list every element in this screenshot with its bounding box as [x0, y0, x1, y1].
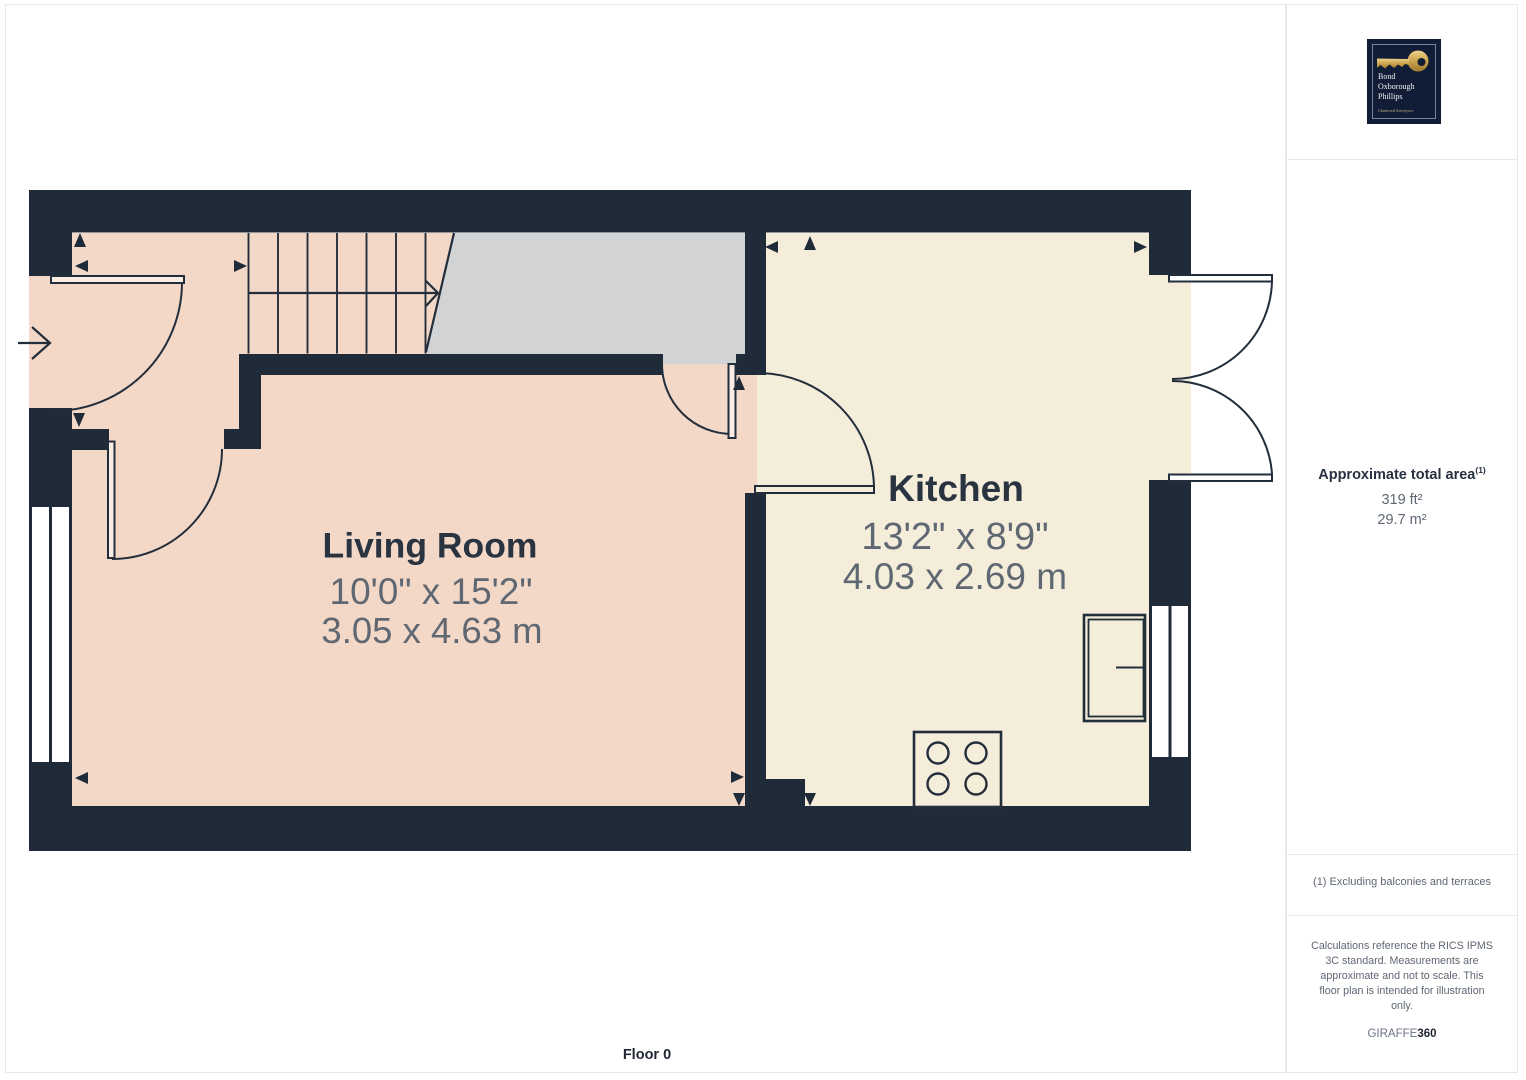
svg-text:3.05 x 4.63 m: 3.05 x 4.63 m — [321, 610, 542, 651]
svg-text:4.03 x 2.69 m: 4.03 x 2.69 m — [843, 556, 1067, 597]
svg-text:Living Room: Living Room — [323, 526, 538, 566]
svg-text:10'0" x 15'2": 10'0" x 15'2" — [330, 571, 533, 612]
svg-text:13'2" x 8'9": 13'2" x 8'9" — [861, 516, 1048, 558]
svg-text:Kitchen: Kitchen — [888, 468, 1024, 509]
